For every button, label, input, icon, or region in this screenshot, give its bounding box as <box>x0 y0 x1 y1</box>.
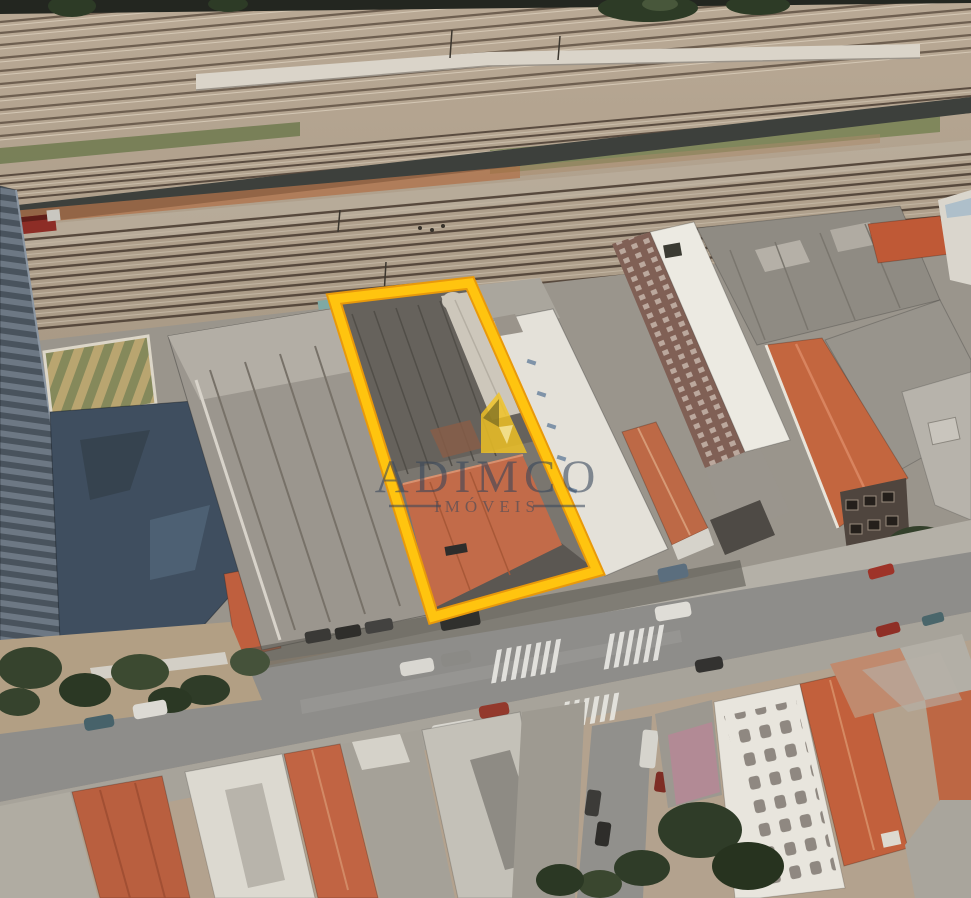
orange-roof-topright <box>868 216 950 263</box>
aerial-scene: ADIMCO IMÓVEIS <box>0 0 971 898</box>
aerial-property-photo: ADIMCO IMÓVEIS <box>0 0 971 898</box>
watermark-tagline-text: IMÓVEIS <box>434 497 540 516</box>
watermark-brand-text: ADIMCO <box>375 451 602 503</box>
